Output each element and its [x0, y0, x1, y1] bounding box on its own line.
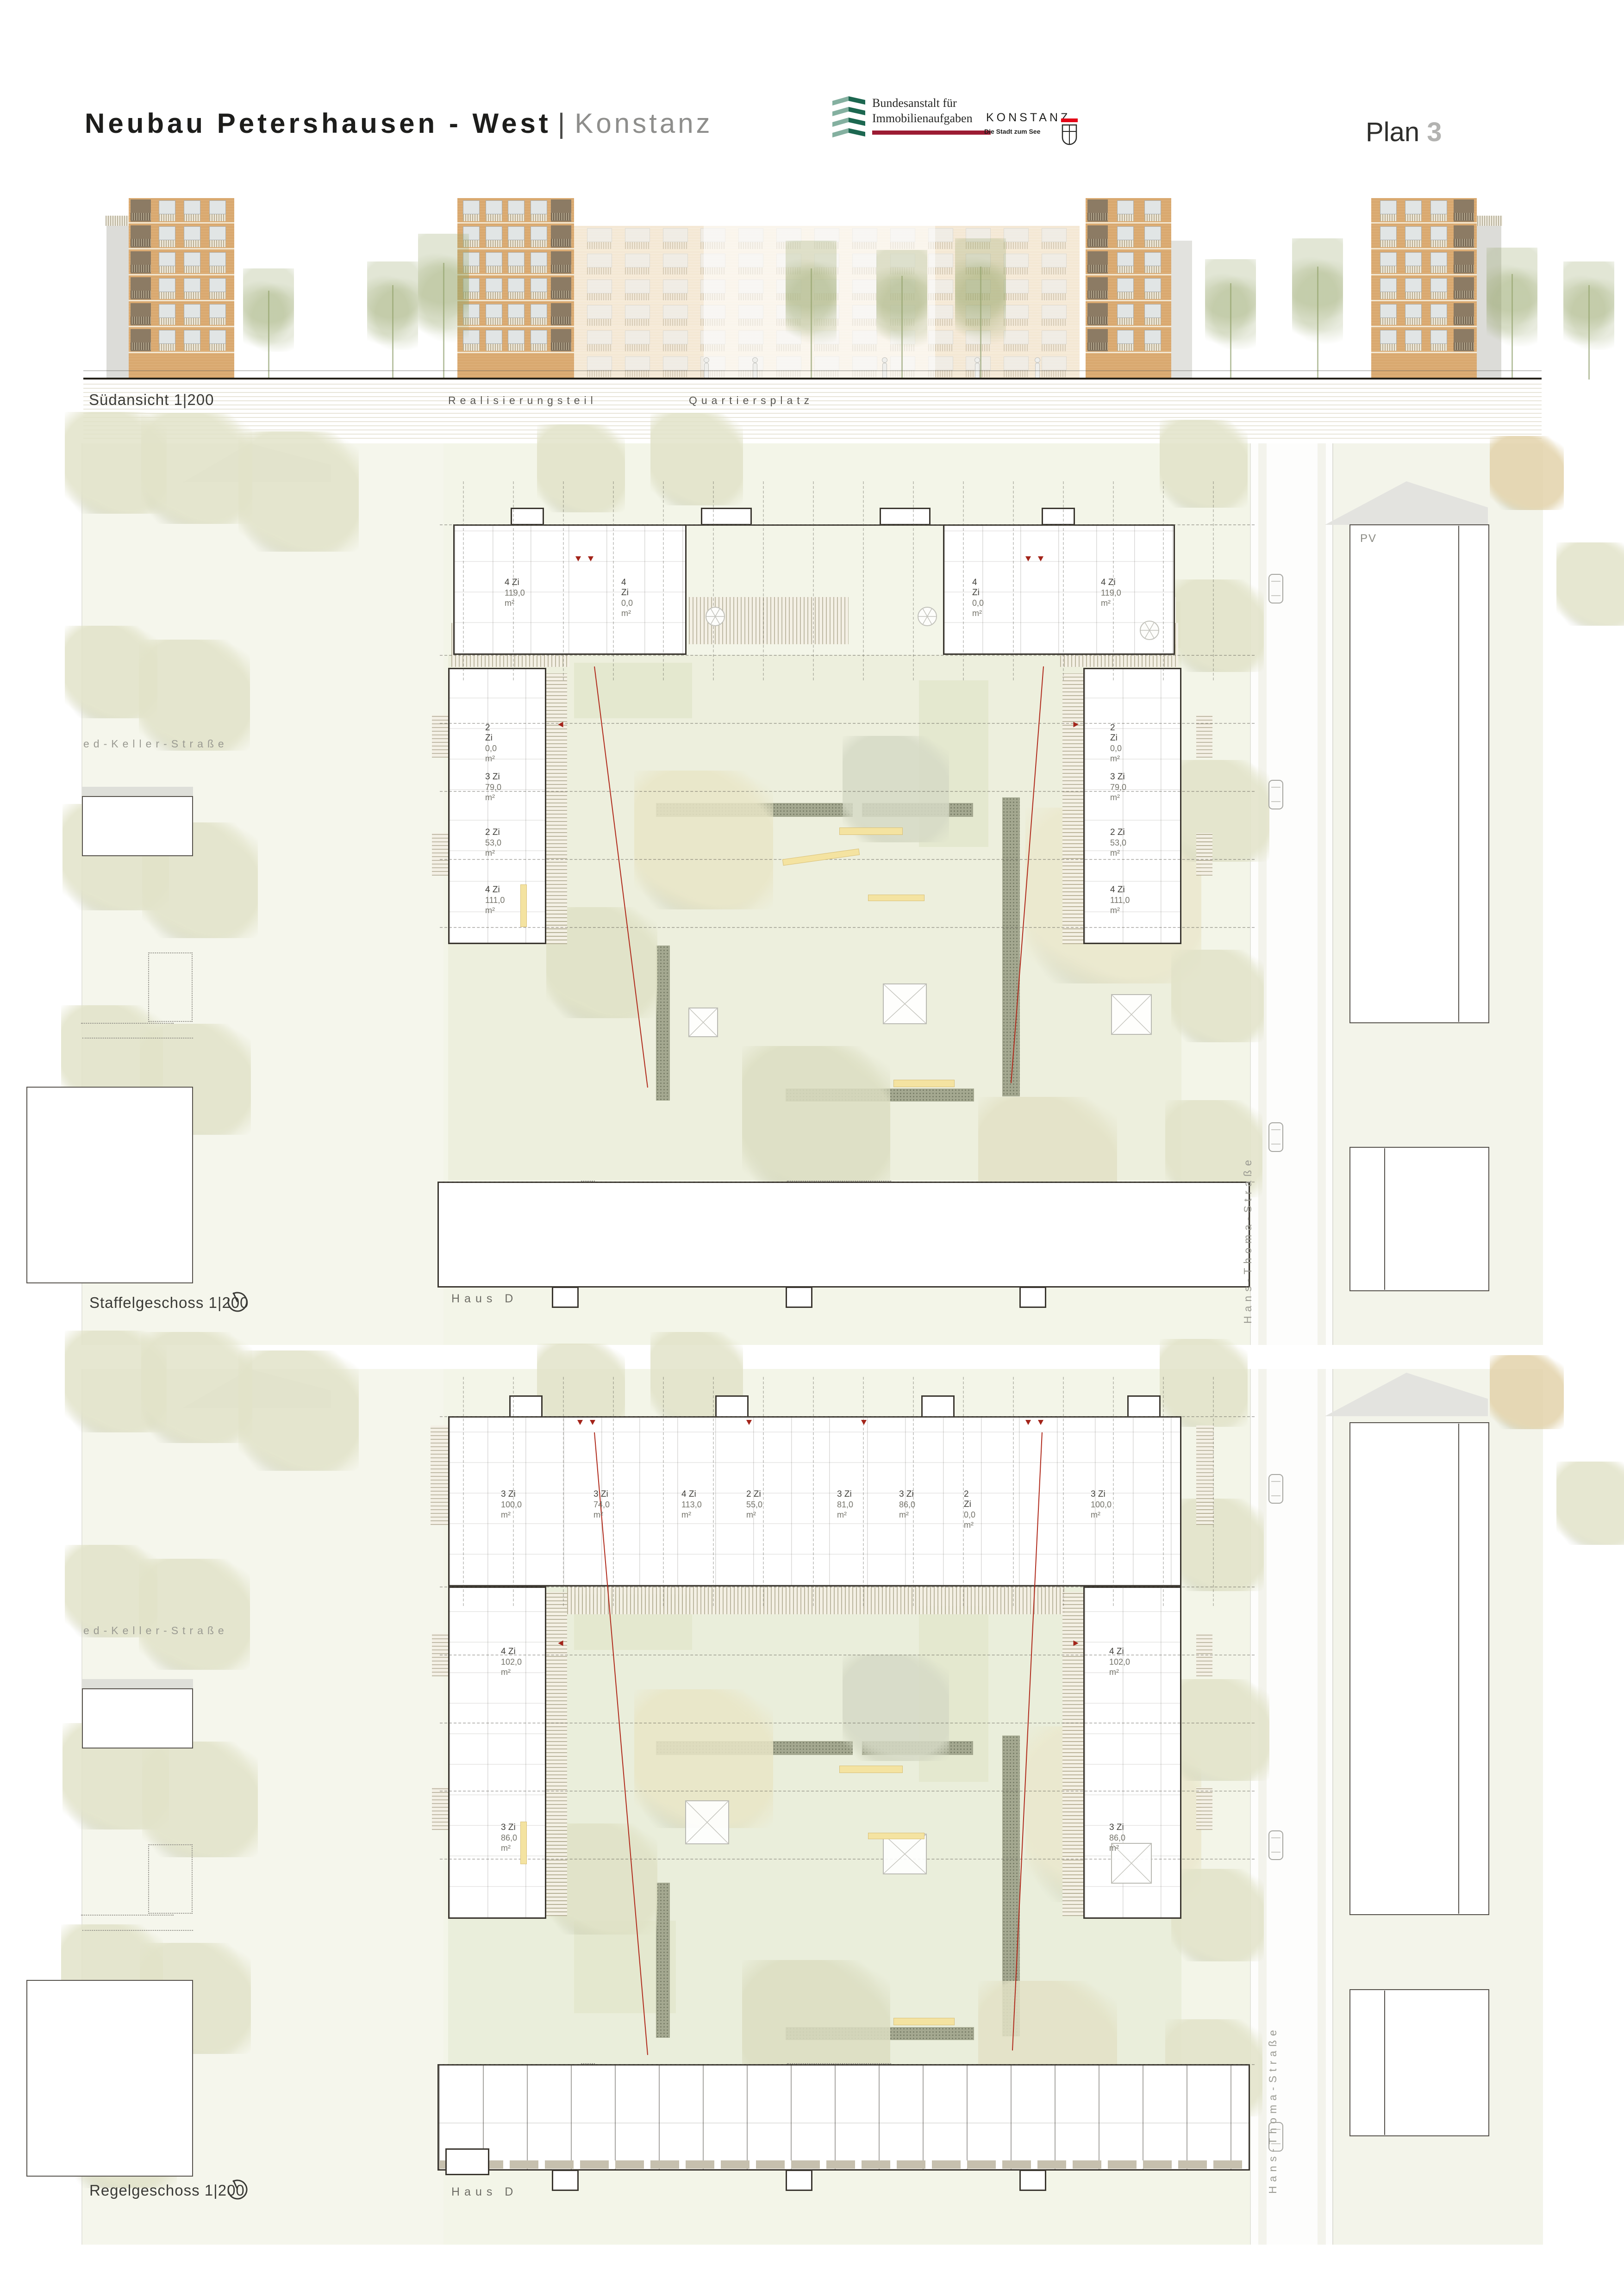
hedge [1002, 797, 1020, 1096]
window [1380, 278, 1397, 292]
floor-band [457, 352, 574, 353]
railing [1117, 214, 1134, 221]
bima-logo-icon [831, 95, 867, 140]
window [1380, 330, 1397, 344]
railing [159, 292, 175, 299]
railing [1430, 214, 1447, 221]
loggia-railing [131, 239, 151, 246]
section-arrow-icon [558, 1641, 563, 1646]
railing [159, 344, 175, 351]
railing [625, 319, 650, 326]
railing [1430, 240, 1447, 247]
tree-icon [1556, 1462, 1624, 1545]
caption-regelgeschoss: Regelgeschoss 1|200 [89, 2182, 245, 2199]
unit-area: 53,0 m² [485, 838, 501, 858]
axis-line [1113, 1377, 1114, 1606]
plan-word: Plan [1366, 117, 1419, 147]
context-building [1349, 524, 1489, 1023]
context-roof [82, 787, 193, 796]
deck-terrace [432, 715, 448, 758]
loggia-railing [1087, 239, 1108, 246]
ground-hatch [83, 382, 1542, 439]
roof-railing [1475, 216, 1502, 226]
unit-area: 55,0 m² [746, 1500, 762, 1520]
railing [587, 268, 612, 274]
street-lane [1258, 443, 1267, 1345]
unit-area: 113,0 m² [681, 1500, 702, 1520]
tree-icon [243, 268, 294, 352]
car-icon [1268, 574, 1283, 604]
tree-icon [843, 1655, 949, 1761]
unit-area: 81,0 m² [837, 1500, 853, 1520]
window [486, 278, 502, 292]
window [184, 226, 200, 240]
tree-icon [843, 736, 949, 842]
loggia-railing [1454, 317, 1474, 324]
stair-bump [921, 1395, 955, 1418]
unit-rooms: 3 Zi [485, 772, 501, 782]
unit-rooms: 2 Zi [1110, 723, 1122, 743]
railing [1405, 266, 1422, 273]
unit-label: 4 Zi111,0 m² [1110, 885, 1130, 915]
unit-rooms: 3 Zi [501, 1823, 517, 1833]
unit-label: 2 Zi55,0 m² [746, 1489, 762, 1520]
window [1405, 226, 1422, 240]
window [1405, 330, 1422, 344]
tree-icon [650, 413, 743, 505]
railing [663, 268, 688, 274]
unit-label: 3 Zi86,0 m² [1109, 1823, 1125, 1853]
loggia-railing [1087, 213, 1108, 220]
unit-rooms: 2 Zi [1110, 828, 1126, 838]
window [587, 228, 612, 242]
railing [159, 266, 175, 273]
loggia-railing [551, 265, 571, 272]
deck-terrace [1062, 673, 1083, 944]
window [1144, 304, 1161, 318]
section-arrow-icon [1025, 1420, 1031, 1425]
tree-icon [142, 1742, 258, 1857]
deck-terrace [432, 833, 448, 876]
window [625, 305, 650, 319]
axis-line [663, 1377, 664, 1606]
railing [486, 266, 502, 273]
section-arrow-icon [1074, 722, 1079, 728]
window [1144, 200, 1161, 214]
tree-icon [1490, 1355, 1564, 1429]
loggia-railing [131, 317, 151, 324]
loggia-railing [1454, 342, 1474, 350]
window [508, 252, 525, 266]
window [663, 356, 688, 370]
railing [1380, 266, 1397, 273]
tree-icon [367, 261, 418, 350]
window [1430, 304, 1447, 318]
section-arrow-icon [1038, 556, 1043, 561]
window [1380, 304, 1397, 318]
railing [1430, 266, 1447, 273]
section-arrow-icon [861, 1420, 867, 1425]
person-icon [1035, 363, 1040, 380]
floor-band [1086, 248, 1171, 249]
railing [508, 266, 525, 273]
dotted-line [82, 1038, 193, 1039]
deck-terrace [432, 1787, 448, 1830]
pergola-icon [883, 1834, 927, 1874]
railing [531, 318, 547, 325]
window [1144, 226, 1161, 240]
axis-line [1213, 481, 1214, 680]
window [209, 278, 226, 292]
railing [531, 292, 547, 299]
tree-icon [876, 250, 927, 347]
loggia-railing [551, 291, 571, 298]
railing [1144, 344, 1161, 351]
railing [1380, 292, 1397, 299]
window [1405, 252, 1422, 266]
title-project: Neubau Petershausen - West [85, 108, 551, 139]
floor-band [1086, 300, 1171, 301]
railing [184, 240, 200, 247]
context-building [26, 1980, 193, 2177]
deck-terrace [1196, 833, 1212, 876]
railing [1405, 344, 1422, 351]
bench-icon [520, 1822, 527, 1864]
unit-rooms: 2 Zi [485, 828, 501, 838]
unit-label: 2 Zi0,0 m² [964, 1489, 975, 1530]
railing [184, 318, 200, 325]
railing [209, 240, 226, 247]
unit-rooms: 4 Zi [485, 885, 505, 895]
person-icon [704, 357, 709, 363]
pergola-icon [1111, 994, 1152, 1035]
railing [1004, 268, 1029, 274]
window [1430, 200, 1447, 214]
bench-icon [520, 884, 527, 927]
axis-line [440, 655, 1255, 656]
unit-rooms: 4 Zi [621, 578, 633, 598]
unit-label: 4 Zi113,0 m² [681, 1489, 702, 1520]
railing [1004, 242, 1029, 249]
deck-terrace [1196, 1425, 1214, 1525]
window [184, 252, 200, 266]
tree-icon [786, 241, 837, 345]
railing [486, 318, 502, 325]
unit-rooms: 4 Zi [505, 578, 525, 588]
railing [625, 268, 650, 274]
bench-icon [868, 1833, 924, 1839]
floor-band [457, 274, 574, 275]
car-icon [1268, 1474, 1283, 1504]
bench-icon [839, 1766, 903, 1773]
railing [1380, 240, 1397, 247]
window [209, 200, 226, 214]
bench-icon [839, 828, 903, 835]
deck-terrace [1062, 1592, 1083, 1916]
window [1117, 226, 1134, 240]
railing [1144, 318, 1161, 325]
street-keller-regel: ed-Keller-Straße [83, 1624, 228, 1637]
railing [486, 292, 502, 299]
floor-band [1086, 222, 1171, 224]
person-icon [882, 363, 887, 380]
axis-line [863, 481, 864, 680]
unit-rooms: 3 Zi [1109, 1823, 1125, 1833]
window [463, 200, 480, 214]
unit-rooms: 3 Zi [501, 1489, 522, 1500]
tree-icon [1563, 261, 1614, 350]
floor-band [1371, 248, 1477, 249]
railing [1380, 344, 1397, 351]
stair-bump [701, 508, 752, 525]
tree-icon [139, 640, 250, 751]
window [1004, 330, 1029, 344]
railing [1144, 292, 1161, 299]
railing [508, 214, 525, 221]
unit-label: 3 Zi86,0 m² [501, 1823, 517, 1853]
unit-label: 2 Zi0,0 m² [485, 723, 497, 764]
unit-label: 3 Zi79,0 m² [1110, 772, 1126, 803]
window [508, 226, 525, 240]
tree-icon [1205, 259, 1256, 349]
context-building [1349, 1422, 1489, 1915]
section-arrow-icon [575, 556, 581, 561]
railing [625, 242, 650, 249]
window [625, 280, 650, 293]
window [1117, 330, 1134, 344]
context-building-line [1458, 1424, 1459, 1914]
hedge [656, 946, 670, 1101]
bima-line2: Immobilienaufgaben [872, 111, 973, 126]
window [1004, 356, 1029, 370]
section-arrow-icon [590, 1420, 595, 1425]
window [1430, 226, 1447, 240]
unit-rooms: 4 Zi [1109, 1647, 1130, 1657]
car-icon [1268, 1122, 1283, 1152]
unit-label: 2 Zi0,0 m² [1110, 723, 1122, 764]
tree-icon [418, 234, 469, 343]
bench-icon [893, 1080, 955, 1087]
window [486, 226, 502, 240]
window [1144, 278, 1161, 292]
window [1380, 200, 1397, 214]
axis-line [1163, 1377, 1164, 1606]
window [508, 200, 525, 214]
floor-band [1371, 326, 1477, 327]
railing [209, 214, 226, 221]
tree-icon [537, 424, 625, 512]
railing [508, 344, 525, 351]
pergola-icon [883, 983, 927, 1024]
unit-area: 79,0 m² [485, 782, 501, 803]
window [209, 330, 226, 344]
window [508, 304, 525, 318]
axis-line [463, 1377, 464, 1606]
roof-railing [106, 216, 131, 226]
window [508, 330, 525, 344]
tree-icon [238, 1350, 359, 1471]
main-building [448, 1416, 1181, 1587]
window [531, 252, 547, 266]
floor-band [1371, 300, 1477, 301]
tree-icon [1487, 248, 1537, 347]
person-icon [882, 357, 887, 363]
railing [1004, 344, 1029, 351]
railing [486, 344, 502, 351]
axis-line [440, 1182, 1255, 1182]
axis-line [863, 1377, 864, 1606]
section-arrow-icon [1025, 556, 1031, 561]
floor-band [457, 326, 574, 327]
loggia-railing [551, 317, 571, 324]
railing [531, 214, 547, 221]
unit-area: 119,0 m² [1101, 588, 1121, 608]
context-roof [82, 1679, 193, 1688]
street-lane [1318, 1369, 1326, 2245]
haus-d-bump [786, 2170, 812, 2191]
dotted-line [81, 1915, 174, 1916]
window [663, 330, 688, 344]
tree-icon [1292, 238, 1343, 344]
railing [531, 266, 547, 273]
elevation-annex [106, 226, 130, 380]
railing [663, 319, 688, 326]
floor-band [1086, 274, 1171, 275]
unit-rooms: 3 Zi [1110, 772, 1126, 782]
stair-bump [509, 1395, 543, 1418]
railing [1380, 318, 1397, 325]
window [184, 330, 200, 344]
elevation-caption: Südansicht 1|200 [89, 391, 214, 409]
axis-line [713, 481, 714, 680]
stair-bump [880, 508, 931, 525]
page-title: Neubau Petershausen - West|Konstanz [85, 107, 713, 139]
axis-line [713, 1377, 714, 1606]
railing [966, 344, 991, 351]
tree-icon [1171, 950, 1264, 1042]
floor-band [457, 248, 574, 249]
window [531, 330, 547, 344]
unit-label: 4 Zi119,0 m² [505, 578, 525, 608]
window [209, 304, 226, 318]
window [159, 304, 175, 318]
window [209, 252, 226, 266]
konstanz-red-bar [1061, 118, 1078, 122]
unit-label: 3 Zi74,0 m² [593, 1489, 610, 1520]
window [1004, 280, 1029, 293]
curb-line [1332, 443, 1333, 1345]
unit-area: 111,0 m² [485, 895, 505, 915]
window [1430, 330, 1447, 344]
window [663, 305, 688, 319]
window [663, 228, 688, 242]
window [1117, 252, 1134, 266]
railing [1430, 344, 1447, 351]
railing [1042, 319, 1067, 326]
axis-line [813, 1377, 814, 1606]
unit-area: 111,0 m² [1110, 895, 1130, 915]
axis-line [963, 481, 964, 680]
railing [1430, 292, 1447, 299]
unit-area: 86,0 m² [501, 1833, 517, 1853]
unit-area: 0,0 m² [485, 743, 497, 764]
railing [508, 292, 525, 299]
tree-icon [1490, 436, 1564, 510]
window [159, 200, 175, 214]
deck-terrace [431, 1425, 448, 1525]
railing [209, 318, 226, 325]
dotted-line [81, 1023, 174, 1024]
unit-label: 3 Zi79,0 m² [485, 772, 501, 803]
window [625, 330, 650, 344]
loggia-railing [1454, 213, 1474, 220]
railing [184, 266, 200, 273]
window [1380, 252, 1397, 266]
floor-band [129, 300, 234, 301]
pergola-icon [688, 1008, 718, 1037]
stair-bump [1042, 508, 1075, 525]
curb-line [1332, 1369, 1333, 2245]
railing [587, 344, 612, 351]
axis-line [1163, 481, 1164, 680]
unit-area: 0,0 m² [1110, 743, 1122, 764]
floor-band [129, 352, 234, 353]
bima-line1: Bundesanstalt für [872, 95, 973, 111]
window [184, 304, 200, 318]
railing [184, 292, 200, 299]
axis-line [440, 1416, 1255, 1417]
stair-bump [715, 1395, 749, 1418]
tree-icon [1160, 420, 1248, 508]
axis-line [440, 1655, 1255, 1655]
railing [159, 240, 175, 247]
window [1117, 278, 1134, 292]
haus-d-walls [439, 2160, 1248, 2169]
loggia-railing [551, 213, 571, 220]
ground-line [83, 370, 1542, 371]
railing [1144, 240, 1161, 247]
window [486, 330, 502, 344]
person-icon [974, 357, 980, 363]
railing [184, 344, 200, 351]
railing [1004, 319, 1029, 326]
loggia-railing [1454, 265, 1474, 272]
main-building [1083, 668, 1181, 944]
loggia-railing [1454, 239, 1474, 246]
loggia-railing [551, 239, 571, 246]
unit-area: 0,0 m² [972, 598, 984, 618]
railing [587, 293, 612, 300]
unit-label: 3 Zi100,0 m² [1091, 1489, 1112, 1520]
unit-area: 102,0 m² [1109, 1657, 1130, 1677]
unit-area: 86,0 m² [899, 1500, 915, 1520]
main-building [453, 524, 687, 655]
context-building [82, 1688, 193, 1748]
railing [1430, 318, 1447, 325]
window [1405, 200, 1422, 214]
haus-d-bump [1019, 1287, 1046, 1308]
railing [463, 214, 480, 221]
floor-band [1371, 274, 1477, 275]
unit-rooms: 4 Zi [972, 578, 984, 598]
axis-line [913, 481, 914, 680]
unit-area: 53,0 m² [1110, 838, 1126, 858]
unit-label: 2 Zi53,0 m² [485, 828, 501, 858]
unit-label: 3 Zi86,0 m² [899, 1489, 915, 1520]
railing [159, 318, 175, 325]
axis-line [1013, 481, 1014, 680]
unit-rooms: 4 Zi [501, 1647, 522, 1657]
